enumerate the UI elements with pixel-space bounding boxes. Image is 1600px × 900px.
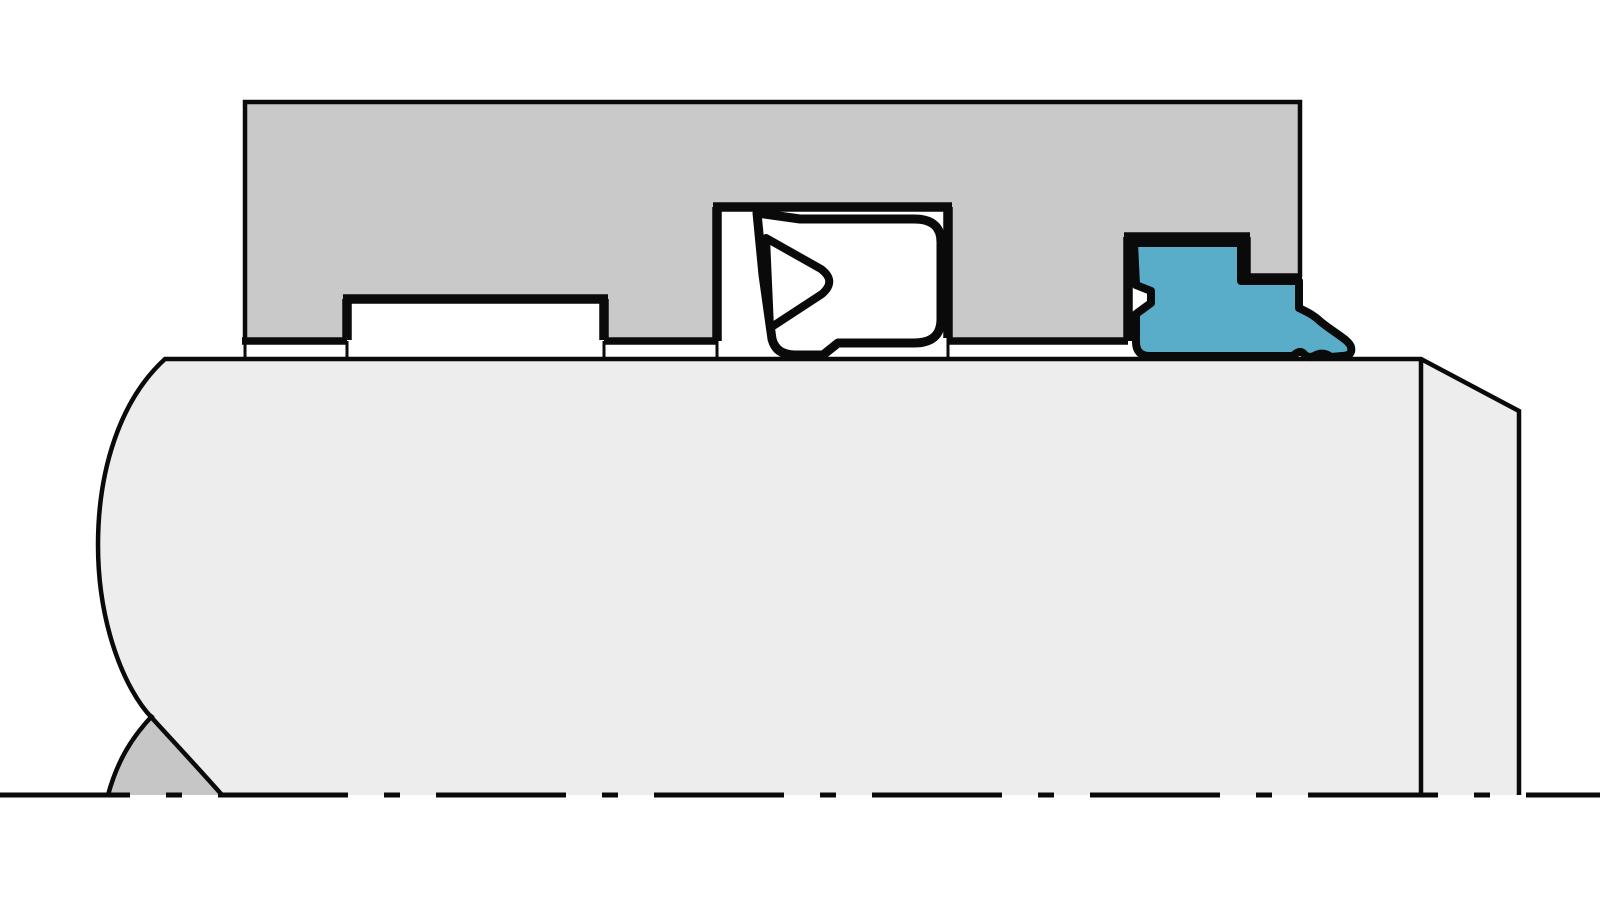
diagram-page xyxy=(0,0,1600,900)
empty-groove-walls xyxy=(343,299,608,340)
wiper-seal xyxy=(1134,243,1351,357)
piston-rod-body xyxy=(98,359,1519,795)
seal-cross-section-diagram xyxy=(0,0,1600,900)
